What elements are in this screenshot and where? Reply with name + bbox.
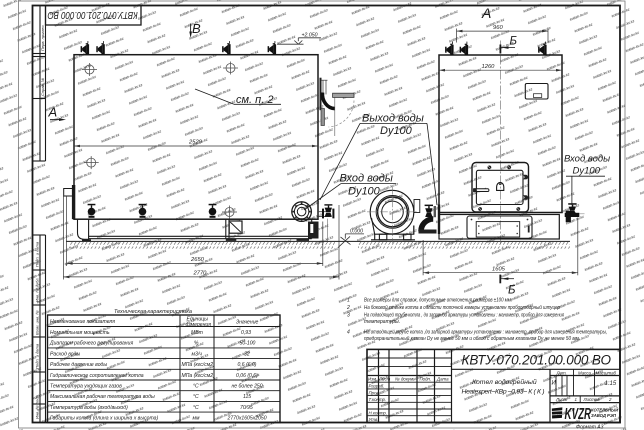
svg-text:3: 3 <box>347 312 350 318</box>
svg-text:Котел водогрейный: Котел водогрейный <box>472 378 537 386</box>
svg-text:0,6 (6,0): 0,6 (6,0) <box>238 362 257 368</box>
svg-text:На боковой стенке котла в обла: На боковой стенке котла в области топочн… <box>364 304 560 311</box>
svg-text:А: А <box>48 105 58 120</box>
svg-text:Вход воды: Вход воды <box>340 173 393 185</box>
svg-text:Температура воды (вход/выход): Температура воды (вход/выход) <box>50 405 128 411</box>
svg-text:2770х1605х2050: 2770х1605х2050 <box>227 416 267 422</box>
svg-text:%: % <box>194 341 199 347</box>
svg-text:Масса: Масса <box>578 370 592 375</box>
svg-text:Б: Б <box>508 285 516 297</box>
svg-text:Выход воды: Выход воды <box>362 113 424 125</box>
svg-text:температуры.: температуры. <box>364 319 400 325</box>
svg-text:Техническая характеристика: Техническая характеристика <box>114 309 192 315</box>
svg-text:В: В <box>192 21 201 36</box>
svg-text:4: 4 <box>347 329 350 335</box>
svg-text:Изм.: Изм. <box>368 376 377 381</box>
svg-text:Номинальная мощность: Номинальная мощность <box>50 330 110 336</box>
svg-text:Гидравлическое сопротивление к: Гидравлическое сопротивление котла <box>50 373 144 379</box>
svg-text:КВТУ.070.201.00.000 ВО: КВТУ.070.201.00.000 ВО <box>48 10 138 21</box>
svg-text:Heatexpert–КВр –0,93– К ( К ): Heatexpert–КВр –0,93– К ( К ) <box>462 388 545 395</box>
svg-text:50-100: 50-100 <box>240 341 256 347</box>
svg-text:32: 32 <box>244 351 250 357</box>
svg-text:см. п. 2: см. п. 2 <box>236 94 273 106</box>
svg-text:На отводящей трубе котла ,до з: На отводящей трубе котла ,до запорной ар… <box>364 328 607 335</box>
svg-text:Рабочее давление воды: Рабочее давление воды <box>50 362 107 368</box>
svg-text:Диапазон рабочего регулировани: Диапазон рабочего регулирования <box>49 341 133 347</box>
svg-text:Температура уходящих газов: Температура уходящих газов <box>50 384 122 390</box>
svg-text:Dy100: Dy100 <box>573 166 601 177</box>
svg-text:Справ. №: Справ. № <box>40 77 45 96</box>
svg-text:Наименование показателя: Наименование показателя <box>50 319 115 325</box>
svg-text:Инв. № подл.: Инв. № подл. <box>35 394 40 419</box>
svg-text:1260: 1260 <box>482 64 496 70</box>
svg-text:Масштаб: Масштаб <box>596 370 617 375</box>
svg-text:Разраб.: Разраб. <box>369 384 385 389</box>
svg-text:Значение: Значение <box>236 320 259 326</box>
svg-text:0.000: 0.000 <box>350 228 363 234</box>
svg-text:2: 2 <box>346 305 350 311</box>
svg-text:измерения: измерения <box>186 322 212 328</box>
svg-text:1: 1 <box>347 298 350 304</box>
svg-text:Лит.: Лит. <box>556 370 567 375</box>
svg-text:ЗАВОД РЭП: ЗАВОД РЭП <box>591 413 617 418</box>
svg-text:м3/ч: м3/ч <box>192 351 203 357</box>
svg-text:2520: 2520 <box>188 140 203 146</box>
svg-text:не более 250: не более 250 <box>232 384 263 390</box>
svg-text:Н.контр.: Н.контр. <box>369 410 388 415</box>
svg-text:Дата: Дата <box>436 376 449 381</box>
svg-text:№ докум.: № докум. <box>395 376 414 381</box>
svg-text:70/95: 70/95 <box>240 405 253 411</box>
svg-text:Dy100: Dy100 <box>380 125 413 137</box>
svg-text:2770: 2770 <box>193 271 208 277</box>
svg-text:0,06 (0,6): 0,06 (0,6) <box>236 373 258 379</box>
svg-text:Взам. инв. №: Взам. инв. № <box>35 310 40 335</box>
svg-text:МВт: МВт <box>191 330 203 336</box>
svg-text:Утв.: Утв. <box>369 417 379 422</box>
svg-text:Перв. примен.: Перв. примен. <box>40 24 45 51</box>
svg-text:1605: 1605 <box>492 266 506 272</box>
svg-text:Листов: Листов <box>583 397 601 402</box>
svg-text:Подп. и дата: Подп. и дата <box>35 343 40 369</box>
svg-text:Пров.: Пров. <box>369 390 381 395</box>
svg-text:КВТУ.070.201.00.000 ВО: КВТУ.070.201.00.000 ВО <box>462 352 612 367</box>
svg-text:1:15: 1:15 <box>605 381 617 387</box>
svg-text:Подп. и дата: Подп. и дата <box>35 241 40 267</box>
svg-text:115: 115 <box>243 394 251 400</box>
svg-text:Т.контр.: Т.контр. <box>369 397 387 402</box>
svg-text:°С: °С <box>193 405 199 411</box>
svg-text:0,93: 0,93 <box>241 330 251 336</box>
svg-text:Все размеры для справок, допус: Все размеры для справок, допустимые откл… <box>364 298 512 304</box>
svg-text:МПа (кгс/см2): МПа (кгс/см2) <box>182 373 216 379</box>
svg-text:И: И <box>552 380 557 386</box>
svg-text:Инв. № дубл.: Инв. № дубл. <box>35 277 40 302</box>
svg-text:предохранительный клапан Dy н: предохранительный клапан Dy не менее 50 … <box>364 335 580 342</box>
svg-text:КОТЕЛЬНЫЙ: КОТЕЛЬНЫЙ <box>591 408 619 413</box>
svg-text:Габариты котла (длина х ширина: Габариты котла (длина х ширина х высота) <box>50 416 158 422</box>
svg-text:960: 960 <box>493 25 503 31</box>
svg-text:KVZR: KVZR <box>565 405 592 423</box>
svg-text:Расход воды: Расход воды <box>50 351 80 357</box>
svg-text:Формат А3: Формат А3 <box>576 425 604 430</box>
svg-text:А: А <box>481 5 491 21</box>
svg-text:Б: Б <box>510 36 518 48</box>
svg-text:2650: 2650 <box>190 257 205 263</box>
svg-text:+2.050: +2.050 <box>302 32 318 38</box>
svg-text:Dy100: Dy100 <box>348 186 381 198</box>
svg-text:2: 2 <box>608 397 612 402</box>
svg-text:°С: °С <box>193 384 199 390</box>
svg-text:Подп.: Подп. <box>420 376 432 381</box>
svg-text:На подводящей трубе котла ,: На подводящей трубе котла , до запорной … <box>364 311 564 318</box>
svg-text:МПа (кгс/см2): МПа (кгс/см2) <box>182 362 216 368</box>
svg-text:мм: мм <box>193 416 200 422</box>
svg-text:°С: °С <box>193 394 199 400</box>
svg-text:Лист: Лист <box>555 397 568 402</box>
svg-text:Вход воды: Вход воды <box>564 154 610 165</box>
svg-text:Лист: Лист <box>378 376 391 381</box>
svg-text:Максимальная рабочая температу: Максимальная рабочая температура воды <box>50 394 155 400</box>
